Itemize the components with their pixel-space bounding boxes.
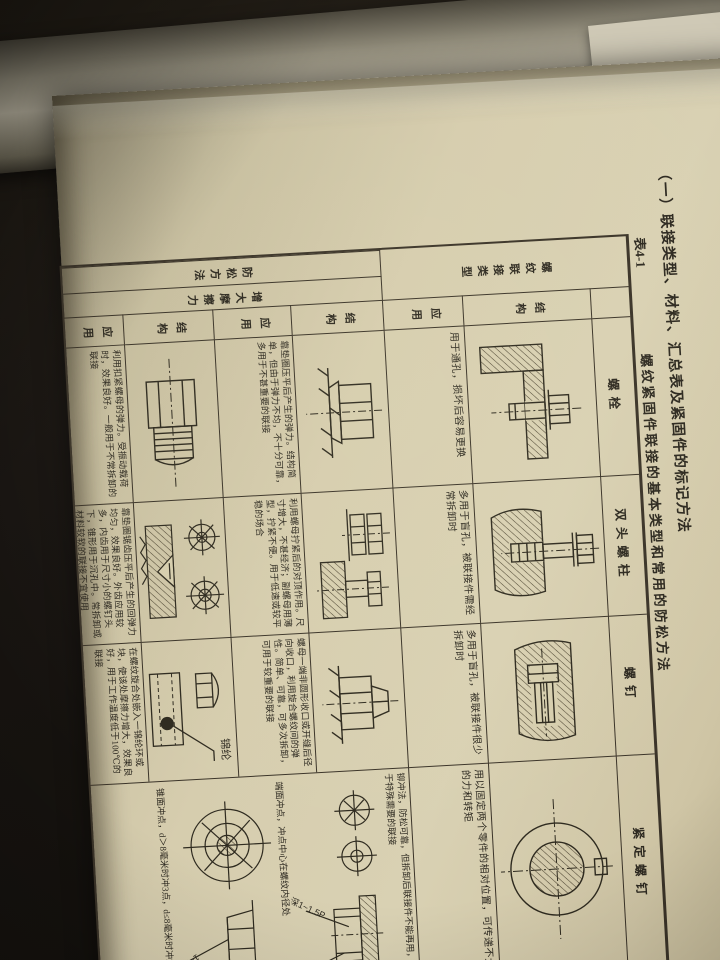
double-nut-application: 利用螺母拧紧后的对顶作用。尺寸增大，不甚经济；副螺母用薄型，拧紧不便。用于低速或… bbox=[224, 493, 310, 637]
type-group-label: 螺纹联接类型 bbox=[456, 259, 553, 277]
stud-structure-cell bbox=[473, 476, 609, 623]
nylon-ring-cell: 锦纶 bbox=[142, 637, 240, 782]
bolt-structure-cell bbox=[464, 318, 601, 483]
book-photo: （一）联接类型、材料、汇总表及紧固件的标记方法 表4-1 螺纹紧固件联接的基本类… bbox=[0, 0, 720, 960]
setscrew-structure-cell bbox=[489, 756, 629, 960]
lock-nut-diagram bbox=[311, 632, 406, 769]
bank1-application-label: 应用 bbox=[213, 305, 293, 339]
col-header-screw: 螺钉 bbox=[609, 614, 655, 756]
screw-structure-cell bbox=[481, 616, 617, 763]
tooth-washer-cell bbox=[134, 497, 232, 642]
page-content: （一）联接类型、材料、汇总表及紧固件的标记方法 表4-1 螺纹紧固件联接的基本类… bbox=[57, 107, 720, 960]
clamp-nut-cell bbox=[125, 339, 224, 502]
punch-depth-dim: 深1~1.5P bbox=[288, 895, 326, 920]
corner-cell bbox=[591, 286, 631, 318]
spring-washer-cell bbox=[293, 330, 394, 493]
tooth-washer-application: 靠垫圈锯齿压平后产生的回弹力均匀，效果良好。外齿应用较多，内齿用于尺寸小的螺钉头… bbox=[75, 502, 142, 645]
nylon-callout-label: 锦纶 bbox=[219, 737, 234, 760]
clamp-nut-application: 利用扣紧螺母的弹力。受振动载荷时，效果良好。一般用于不常拆卸的联接 bbox=[66, 344, 134, 505]
nylon-ring-diagram: 锦纶 bbox=[142, 641, 237, 778]
screw-application: 多用于盲孔，被联接件很少拆卸时 bbox=[401, 623, 489, 767]
setscrew-connection-diagram bbox=[492, 765, 625, 960]
row-label-application: 应用 bbox=[383, 295, 465, 329]
cone-face-punch-diagram: 1~1.5P bbox=[166, 780, 281, 960]
clamp-nut-diagram bbox=[127, 344, 221, 499]
stud-connection-diagram bbox=[476, 481, 605, 620]
antiloosen-group-label: 防松方法 bbox=[189, 264, 254, 281]
friction-group-label: 增大摩擦力 bbox=[182, 289, 263, 306]
setscrew-application: 用以固定两个零件的相对位置，可传递不大的力和转矩 bbox=[409, 763, 501, 960]
cone-pitch-dim: 1~1.5P bbox=[172, 952, 202, 960]
nylon-ring-application: 在螺纹旋合处嵌入一锦纶环或块，使该处摩擦力增大，效果良好，用于工作温度低于100… bbox=[83, 642, 150, 785]
screw-connection-diagram bbox=[490, 621, 607, 759]
lock-nut-cell bbox=[309, 627, 409, 772]
bank2-application-label: 应用 bbox=[64, 314, 125, 347]
spring-washer-diagram bbox=[294, 334, 390, 489]
double-nut-diagram bbox=[302, 492, 399, 629]
bolt-application: 用于通孔，损坏后容易更换 bbox=[385, 325, 474, 487]
book-page: （一）联接类型、材料、汇总表及紧固件的标记方法 表4-1 螺纹紧固件联接的基本类… bbox=[52, 57, 720, 960]
col-header-stud: 双头螺柱 bbox=[601, 474, 647, 616]
lock-nut-application: 螺母一端非圆形收口或开缝后径向收口，利用旋合螺纹间的弹性。简单、可靠，可多次拆卸… bbox=[231, 632, 317, 776]
stud-application: 多用于盲孔，被联接件需经常拆卸时 bbox=[393, 483, 481, 627]
end-face-punch-diagram: 深1~1.5P 1~1.5P bbox=[284, 774, 391, 960]
bolt-connection-diagram bbox=[467, 323, 597, 480]
double-nut-cell bbox=[302, 488, 402, 633]
tooth-washer-diagram bbox=[135, 502, 230, 639]
fastener-table: 螺纹联接类型 螺栓 双头螺柱 螺钉 紧定螺钉 结构 应用 bbox=[59, 234, 669, 960]
spring-washer-application: 靠垫圈压平后产生的弹力。结构简单，但由于弹力不均，不十分可靠，多用于不甚重要的联… bbox=[215, 335, 302, 497]
table-number: 表4-1 bbox=[631, 237, 652, 268]
setscrew-antiloosen-cell: 铆冲法，防松可靠，但拆卸后联接件不能再用，用于特殊需要的联接 bbox=[91, 767, 422, 960]
